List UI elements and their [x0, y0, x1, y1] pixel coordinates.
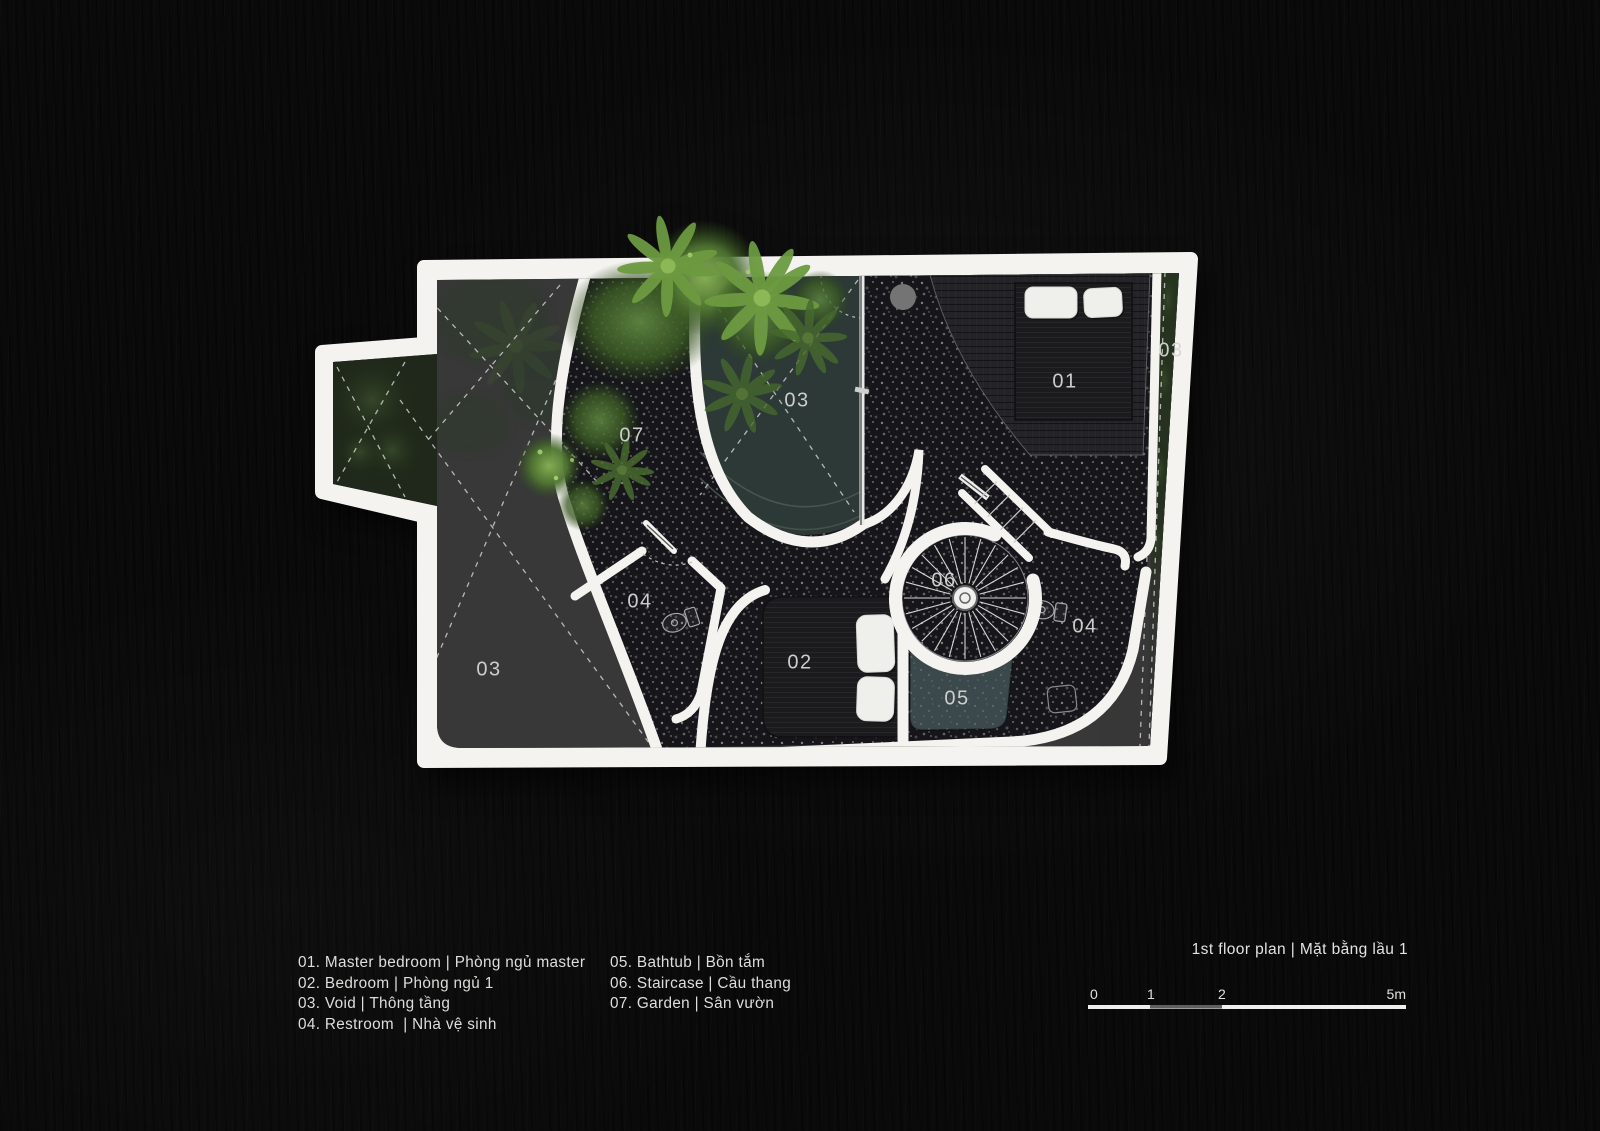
- stool: [890, 284, 916, 310]
- legend-item: 04. Restroom | Nhà vệ sinh: [298, 1015, 585, 1036]
- floor-plan: 07 03 01 03 04 06 04 02 05 03: [0, 0, 1600, 1131]
- scale-bar: 0 1 2 5m: [1088, 986, 1406, 1012]
- room-label-master-bedroom: 01: [1052, 370, 1077, 392]
- room-label-void-right: 03: [1158, 339, 1183, 361]
- legend-item: 05. Bathtub | Bồn tắm: [610, 953, 791, 974]
- room-label-garden: 07: [619, 424, 644, 446]
- room-label-void-bottom-left: 03: [476, 658, 501, 680]
- room-label-staircase: 06: [931, 569, 956, 591]
- legend-column-2: 05. Bathtub | Bồn tắm 06. Staircase | Cầ…: [610, 953, 791, 1015]
- scale-bar-segments: [1088, 1005, 1406, 1009]
- legend-item: 02. Bedroom | Phòng ngủ 1: [298, 974, 585, 995]
- page: 07 03 01 03 04 06 04 02 05 03 01. Master…: [0, 0, 1600, 1131]
- legend-item: 06. Staircase | Cầu thang: [610, 974, 791, 995]
- legend-column-1: 01. Master bedroom | Phòng ngủ master 02…: [298, 953, 585, 1035]
- legend-item: 01. Master bedroom | Phòng ngủ master: [298, 953, 585, 974]
- room-label-restroom-right: 04: [1072, 615, 1097, 637]
- room-label-restroom-left: 04: [627, 590, 652, 612]
- scale-tick-5m: 5m: [1387, 986, 1406, 1002]
- room-label-bathtub: 05: [944, 687, 969, 709]
- room-label-void-top: 03: [784, 389, 809, 411]
- scale-tick-2: 2: [1218, 986, 1226, 1002]
- master-bed: [1015, 283, 1132, 420]
- scale-tick-0: 0: [1090, 986, 1098, 1002]
- scale-tick-1: 1: [1147, 986, 1155, 1002]
- plan-title: 1st floor plan | Mặt bằng lầu 1: [1192, 941, 1408, 959]
- bedroom-bed: [763, 597, 900, 737]
- legend-item: 03. Void | Thông tầng: [298, 994, 585, 1015]
- legend-item: 07. Garden | Sân vườn: [610, 994, 791, 1015]
- room-label-bedroom: 02: [787, 651, 812, 673]
